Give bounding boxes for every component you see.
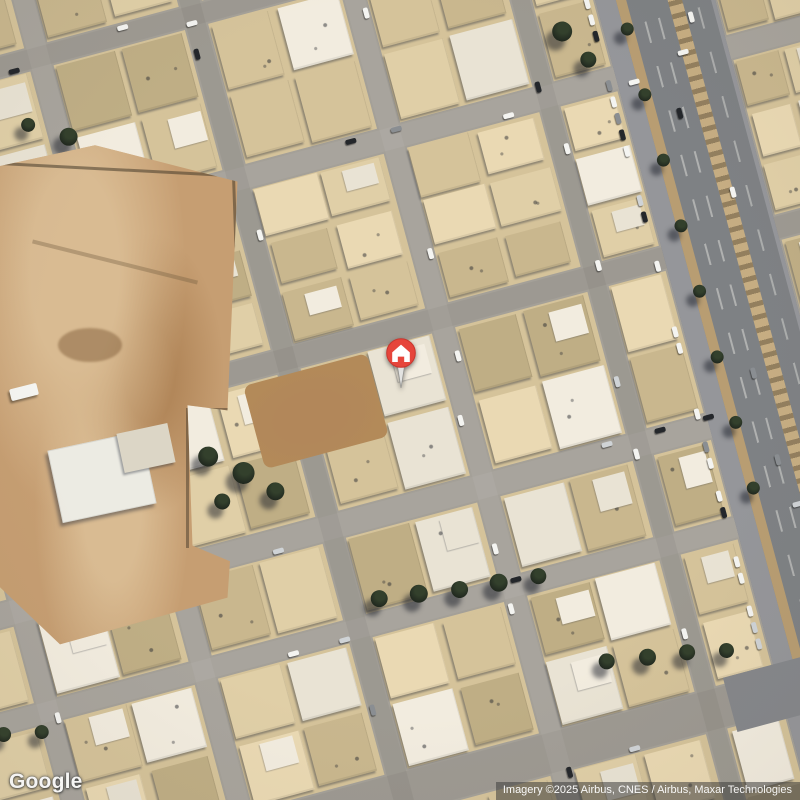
building: [349, 261, 419, 320]
attribution-text: Imagery ©2025 Airbus, CNES / Airbus, Max…: [503, 784, 792, 796]
building: [658, 445, 724, 526]
rooftop: [260, 736, 300, 772]
building: [524, 295, 601, 377]
building: [392, 688, 468, 765]
building: [384, 39, 459, 119]
map-attribution: Imagery ©2025 Airbus, CNES / Airbus, Max…: [496, 782, 800, 800]
building: [271, 228, 338, 284]
building: [212, 11, 285, 89]
warehouse-building: [116, 423, 175, 473]
building: [259, 547, 338, 634]
building: [504, 483, 582, 567]
building: [131, 688, 206, 763]
building: [460, 672, 534, 745]
building: [287, 647, 362, 720]
rooftop: [342, 163, 380, 191]
marker-stem: [397, 365, 405, 389]
building: [569, 464, 646, 551]
building: [56, 51, 132, 132]
building: [151, 756, 222, 800]
building: [122, 33, 199, 112]
building: [375, 623, 450, 699]
building: [221, 664, 296, 739]
building: [230, 80, 304, 157]
building: [613, 629, 690, 707]
building: [459, 314, 533, 392]
building: [304, 713, 377, 786]
building: [443, 607, 516, 680]
rooftop: [678, 451, 712, 489]
building: [366, 0, 439, 47]
rooftop: [304, 285, 342, 315]
dirt-track: [32, 239, 198, 284]
building: [736, 50, 791, 105]
truck: [9, 383, 39, 401]
building: [478, 385, 552, 463]
building: [0, 0, 17, 60]
building: [277, 0, 353, 70]
rooftop: [549, 304, 590, 342]
building: [336, 211, 403, 270]
building: [295, 61, 373, 143]
dirt-mound: [58, 328, 122, 362]
building: [752, 104, 800, 157]
rooftop: [701, 551, 735, 584]
rooftop: [556, 590, 596, 625]
rooftop: [612, 204, 646, 232]
building: [387, 407, 466, 490]
building: [542, 365, 623, 450]
rooftop: [592, 471, 633, 512]
rooftop: [0, 82, 32, 120]
building: [438, 237, 509, 297]
building: [591, 198, 655, 258]
building: [530, 582, 605, 655]
building: [505, 221, 571, 277]
building: [576, 145, 642, 206]
building: [490, 167, 563, 227]
building: [478, 118, 545, 175]
building: [415, 507, 491, 592]
building: [449, 19, 530, 101]
rooftop: [106, 780, 143, 800]
sand-lot: [0, 140, 250, 660]
rooftop: [167, 111, 207, 148]
satellite-map-viewport[interactable]: Google Imagery ©2025 Airbus, CNES / Airb…: [0, 0, 800, 800]
home-place-marker[interactable]: [381, 337, 421, 399]
building: [239, 730, 315, 800]
rooftop: [439, 511, 479, 551]
rooftop: [89, 709, 130, 746]
google-logo[interactable]: Google: [9, 770, 83, 794]
building: [320, 157, 391, 217]
building: [595, 563, 672, 641]
